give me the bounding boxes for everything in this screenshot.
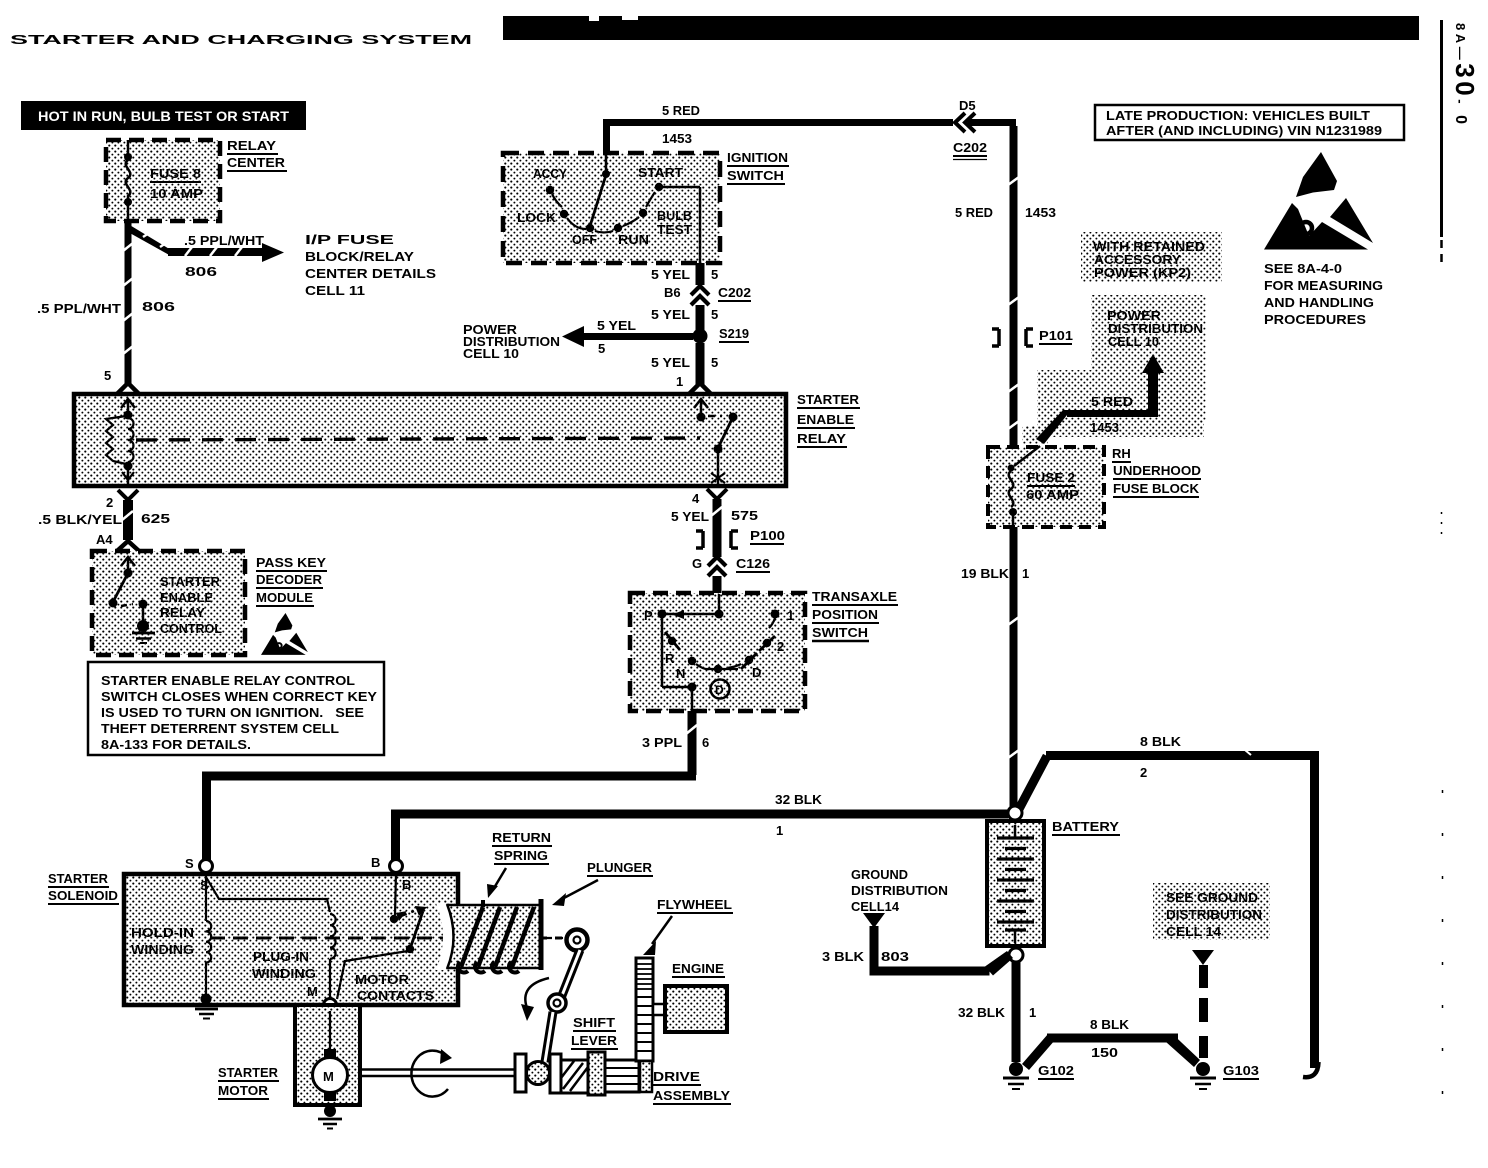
svg-text:5 YEL: 5 YEL xyxy=(651,267,690,282)
svg-text:START: START xyxy=(638,165,683,180)
svg-text:PROCEDURES: PROCEDURES xyxy=(1264,312,1366,327)
svg-text:STARTER AND CHARGING SYSTEM: STARTER AND CHARGING SYSTEM xyxy=(10,32,472,47)
svg-text:5: 5 xyxy=(711,355,718,370)
svg-text:AND HANDLING: AND HANDLING xyxy=(1264,295,1374,310)
svg-text:RETURN: RETURN xyxy=(492,830,551,845)
svg-text:TRANSAXLE: TRANSAXLE xyxy=(812,589,897,604)
svg-text:PASS KEY: PASS KEY xyxy=(256,555,326,570)
svg-text:3 PPL: 3 PPL xyxy=(642,735,682,750)
svg-text:8 BLK: 8 BLK xyxy=(1140,734,1182,749)
svg-text:ACCY: ACCY xyxy=(533,166,567,181)
svg-text:N: N xyxy=(676,666,685,681)
svg-text:C202: C202 xyxy=(953,140,987,155)
svg-text:FUSE 2: FUSE 2 xyxy=(1027,470,1075,485)
svg-text:8A-133 FOR DETAILS.: 8A-133 FOR DETAILS. xyxy=(101,737,251,752)
svg-text:1: 1 xyxy=(776,823,783,838)
svg-text:WINDING: WINDING xyxy=(131,942,194,957)
svg-text:FOR MEASURING: FOR MEASURING xyxy=(1264,278,1383,293)
svg-text:1453: 1453 xyxy=(1025,205,1056,220)
svg-text:B6: B6 xyxy=(664,285,681,300)
svg-text:SHIFT: SHIFT xyxy=(573,1015,615,1030)
svg-text:625: 625 xyxy=(141,511,170,526)
svg-text:ENABLE: ENABLE xyxy=(160,590,213,605)
svg-text:SOLENOID: SOLENOID xyxy=(48,888,118,903)
svg-text:5 YEL: 5 YEL xyxy=(597,318,636,333)
svg-text:POSITION: POSITION xyxy=(812,607,878,622)
svg-text:C202: C202 xyxy=(718,285,751,300)
svg-text:32 BLK: 32 BLK xyxy=(775,792,823,807)
svg-text:4: 4 xyxy=(692,491,700,506)
svg-text:WINDING: WINDING xyxy=(252,966,316,981)
svg-text:P101: P101 xyxy=(1039,328,1073,343)
svg-text:STARTER: STARTER xyxy=(48,871,109,886)
svg-text:B: B xyxy=(402,877,411,892)
svg-text:RUN: RUN xyxy=(618,232,649,247)
svg-text:1: 1 xyxy=(1022,566,1029,581)
svg-text:SPRING: SPRING xyxy=(494,848,548,863)
svg-text:5 YEL: 5 YEL xyxy=(651,307,690,322)
svg-text:SWITCH: SWITCH xyxy=(727,168,784,183)
svg-text:SWITCH: SWITCH xyxy=(812,625,868,640)
svg-text:150: 150 xyxy=(1091,1045,1118,1060)
svg-text:TEST: TEST xyxy=(657,222,692,237)
svg-text:R: R xyxy=(665,651,675,666)
svg-text:5 YEL: 5 YEL xyxy=(671,509,709,524)
svg-text:DECODER: DECODER xyxy=(256,572,323,587)
svg-text:1453: 1453 xyxy=(662,131,692,146)
svg-text:19 BLK: 19 BLK xyxy=(961,566,1010,581)
svg-text:2: 2 xyxy=(106,495,113,510)
svg-text:1: 1 xyxy=(787,608,794,623)
svg-text:5 RED: 5 RED xyxy=(1091,394,1133,409)
svg-text:8 BLK: 8 BLK xyxy=(1090,1017,1130,1032)
svg-text:M: M xyxy=(307,984,318,999)
svg-text:806: 806 xyxy=(185,264,217,279)
svg-text:5 YEL: 5 YEL xyxy=(651,355,690,370)
svg-text:M: M xyxy=(323,1069,334,1084)
svg-text:STARTER: STARTER xyxy=(218,1065,279,1080)
svg-text:CELL 14: CELL 14 xyxy=(1166,924,1222,939)
svg-text:STARTER ENABLE RELAY CONTROL: STARTER ENABLE RELAY CONTROL xyxy=(101,673,355,688)
svg-text:575: 575 xyxy=(731,508,758,523)
svg-text:C126: C126 xyxy=(736,556,770,571)
svg-text:FUSE BLOCK: FUSE BLOCK xyxy=(1113,481,1200,496)
svg-text:CENTER: CENTER xyxy=(227,155,286,170)
svg-text:5 RED: 5 RED xyxy=(662,103,700,118)
svg-text:5: 5 xyxy=(711,267,718,282)
svg-text:RELAY: RELAY xyxy=(160,605,205,620)
svg-text:RELAY: RELAY xyxy=(797,431,846,446)
svg-text:DISTRIBUTION: DISTRIBUTION xyxy=(1166,907,1262,922)
svg-text:LOCK: LOCK xyxy=(517,210,557,225)
svg-text:RH: RH xyxy=(1112,446,1131,461)
svg-text:2: 2 xyxy=(1140,765,1147,780)
svg-text:ENGINE: ENGINE xyxy=(672,961,724,976)
svg-text:STARTER: STARTER xyxy=(797,392,860,407)
svg-text:G: G xyxy=(692,556,702,571)
svg-text:60 AMP: 60 AMP xyxy=(1026,487,1079,502)
svg-text:CONTACTS: CONTACTS xyxy=(357,988,434,1003)
svg-text:CONTROL: CONTROL xyxy=(160,621,222,636)
svg-text:UNDERHOOD: UNDERHOOD xyxy=(1113,463,1201,478)
svg-text:CELL 10: CELL 10 xyxy=(463,346,519,361)
svg-text:1453: 1453 xyxy=(1090,420,1119,435)
svg-text:MOTOR: MOTOR xyxy=(355,972,410,987)
svg-text:I/P FUSE: I/P FUSE xyxy=(305,232,395,247)
svg-text:FUSE 8: FUSE 8 xyxy=(150,166,201,181)
svg-text:ASSEMBLY: ASSEMBLY xyxy=(653,1088,730,1103)
svg-text:PLUG-IN: PLUG-IN xyxy=(253,949,309,964)
svg-text:D: D xyxy=(715,683,724,697)
svg-text:G102: G102 xyxy=(1038,1063,1074,1078)
svg-text:803: 803 xyxy=(881,949,909,964)
svg-text:S219: S219 xyxy=(719,326,749,341)
svg-text:BULB: BULB xyxy=(657,208,692,223)
svg-text:5: 5 xyxy=(711,307,718,322)
svg-text:2: 2 xyxy=(777,639,784,654)
svg-text:.5 PPL/WHT: .5 PPL/WHT xyxy=(184,233,264,248)
svg-text:5: 5 xyxy=(104,368,111,383)
svg-text:B: B xyxy=(371,855,380,870)
svg-text:A4: A4 xyxy=(96,532,113,547)
svg-text:BLOCK/RELAY: BLOCK/RELAY xyxy=(305,249,414,264)
svg-text:806: 806 xyxy=(142,299,175,314)
svg-text:IGNITION: IGNITION xyxy=(727,150,788,165)
svg-text:3 BLK: 3 BLK xyxy=(822,949,865,964)
svg-text:P100: P100 xyxy=(750,528,785,543)
svg-text:.5 BLK/YEL: .5 BLK/YEL xyxy=(38,512,122,527)
svg-text:DRIVE: DRIVE xyxy=(653,1069,700,1084)
svg-text:HOT IN RUN, BULB TEST OR START: HOT IN RUN, BULB TEST OR START xyxy=(38,108,289,124)
svg-text:G103: G103 xyxy=(1223,1063,1259,1078)
svg-text:1: 1 xyxy=(1029,1005,1036,1020)
svg-text:MODULE: MODULE xyxy=(256,590,313,605)
svg-text:POWER (KP2): POWER (KP2) xyxy=(1094,265,1191,280)
svg-text:CELL 11: CELL 11 xyxy=(305,283,365,298)
svg-text:CELL14: CELL14 xyxy=(851,899,900,914)
svg-text:PLUNGER: PLUNGER xyxy=(587,860,653,875)
svg-text:THEFT DETERRENT SYSTEM CELL: THEFT DETERRENT SYSTEM CELL xyxy=(101,721,339,736)
svg-text:SEE GROUND: SEE GROUND xyxy=(1166,890,1258,905)
svg-text:P: P xyxy=(644,608,653,623)
svg-text:CELL 10: CELL 10 xyxy=(1108,334,1159,349)
svg-text:S: S xyxy=(185,856,194,871)
svg-text:LATE PRODUCTION: VEHICLES BUIL: LATE PRODUCTION: VEHICLES BUILT xyxy=(1106,108,1370,123)
svg-text:1: 1 xyxy=(676,374,683,389)
svg-text:DISTRIBUTION: DISTRIBUTION xyxy=(851,883,948,898)
svg-text:IS USED TO TURN ON IGNITION.: IS USED TO TURN ON IGNITION. SEE xyxy=(101,705,364,720)
svg-text:SWITCH CLOSES WHEN CORRECT KEY: SWITCH CLOSES WHEN CORRECT KEY xyxy=(101,689,377,704)
svg-text:AFTER (AND INCLUDING) VIN N123: AFTER (AND INCLUDING) VIN N1231989 xyxy=(1106,123,1382,138)
svg-text:D: D xyxy=(752,665,761,680)
svg-text:.5 PPL/WHT: .5 PPL/WHT xyxy=(37,301,121,316)
svg-text:OFF: OFF xyxy=(572,232,597,247)
svg-text:5 RED: 5 RED xyxy=(955,205,993,220)
svg-text:FLYWHEEL: FLYWHEEL xyxy=(657,897,732,912)
svg-text:STARTER: STARTER xyxy=(160,574,221,589)
svg-text:5: 5 xyxy=(598,341,605,356)
svg-text:6: 6 xyxy=(702,735,709,750)
svg-text:32 BLK: 32 BLK xyxy=(958,1005,1006,1020)
svg-text:SEE 8A-4-0: SEE 8A-4-0 xyxy=(1264,261,1342,276)
svg-text:D5: D5 xyxy=(959,98,976,113)
svg-text:MOTOR: MOTOR xyxy=(218,1083,269,1098)
svg-text:CENTER DETAILS: CENTER DETAILS xyxy=(305,266,436,281)
svg-text:GROUND: GROUND xyxy=(851,867,908,882)
svg-text:RELAY: RELAY xyxy=(227,138,276,153)
svg-text:BATTERY: BATTERY xyxy=(1052,819,1119,834)
svg-text:LEVER: LEVER xyxy=(571,1033,618,1048)
svg-text:HOLD-IN: HOLD-IN xyxy=(131,925,194,940)
svg-text:10 AMP: 10 AMP xyxy=(150,186,203,201)
svg-text:ENABLE: ENABLE xyxy=(797,412,854,427)
